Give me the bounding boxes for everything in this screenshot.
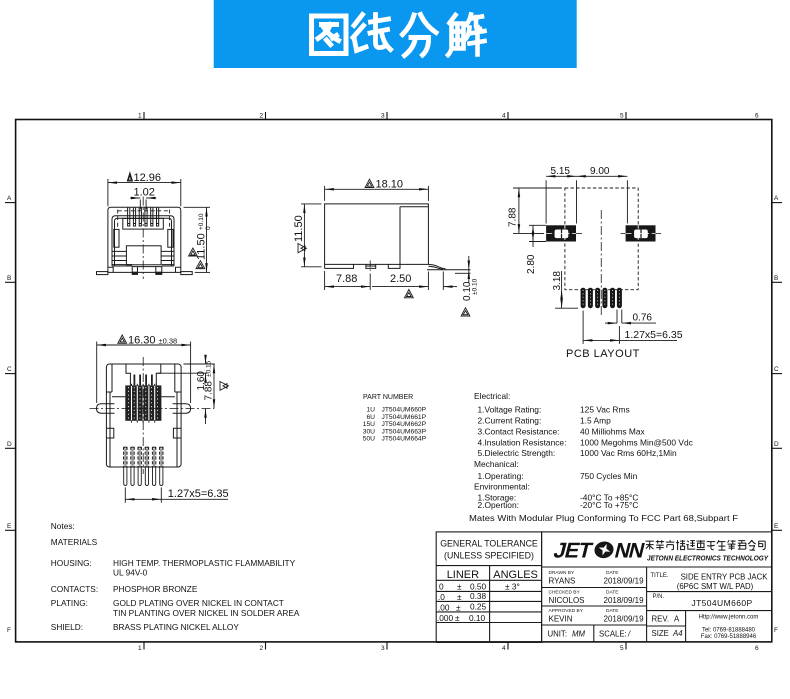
svg-text:Http://www.jetonn.com: Http://www.jetonn.com xyxy=(699,615,759,621)
svg-text:50U: 50U xyxy=(363,436,375,443)
svg-text:PHOSPHOR BRONZE: PHOSPHOR BRONZE xyxy=(113,584,198,594)
svg-text:A: A xyxy=(674,615,680,624)
svg-text:D: D xyxy=(7,441,12,448)
svg-text:.000: .000 xyxy=(437,613,454,623)
svg-text:5.Dielectric Strength:: 5.Dielectric Strength: xyxy=(478,448,556,458)
svg-text:JT504UM664P: JT504UM664P xyxy=(382,436,427,443)
svg-text:LINER: LINER xyxy=(447,569,479,581)
svg-text:CONTACTS:: CONTACTS: xyxy=(51,584,98,594)
svg-text:-20°C To +75°C: -20°C To +75°C xyxy=(580,500,638,510)
svg-text:1.27x5=6.35: 1.27x5=6.35 xyxy=(168,488,229,500)
svg-text:CHECKED BY: CHECKED BY xyxy=(549,590,581,596)
svg-text:NN: NN xyxy=(612,539,646,563)
svg-text:3: 3 xyxy=(381,645,385,652)
svg-text:F: F xyxy=(7,627,11,634)
svg-text:0: 0 xyxy=(439,582,444,592)
svg-text:16.30: 16.30 xyxy=(128,335,156,347)
svg-text:C: C xyxy=(774,366,779,373)
svg-text:±: ± xyxy=(456,602,461,612)
svg-text:6: 6 xyxy=(755,113,759,120)
svg-text:5: 5 xyxy=(620,645,624,652)
svg-text:1.Voltage Rating:: 1.Voltage Rating: xyxy=(478,404,542,414)
svg-text:GENERAL TOLERANCE: GENERAL TOLERANCE xyxy=(440,539,538,549)
svg-text:APPROVED BY: APPROVED BY xyxy=(549,608,584,614)
svg-text:30U: 30U xyxy=(363,428,375,435)
svg-text:0.25: 0.25 xyxy=(470,601,487,611)
svg-text:MM: MM xyxy=(572,630,585,639)
svg-text:JT504UM660P: JT504UM660P xyxy=(382,407,427,414)
svg-text:±0.38: ±0.38 xyxy=(159,337,178,346)
svg-text:TIN PLANTING OVER NICKEL IN SO: TIN PLANTING OVER NICKEL IN SOLDER AREA xyxy=(113,608,300,618)
svg-text:DRAWN BY: DRAWN BY xyxy=(549,570,575,576)
svg-text:18.10: 18.10 xyxy=(376,179,404,191)
svg-text:HIGH TEMP. THERMOPLASTIC FLAMM: HIGH TEMP. THERMOPLASTIC FLAMMABILITY xyxy=(113,558,296,568)
svg-text:.00: .00 xyxy=(438,602,450,612)
svg-text:7.88: 7.88 xyxy=(204,381,215,401)
svg-text:± 3°: ± 3° xyxy=(505,582,520,592)
svg-text:A4: A4 xyxy=(672,629,683,638)
svg-text:.0: .0 xyxy=(438,592,445,602)
svg-text:15U: 15U xyxy=(363,421,375,428)
svg-text:4: 4 xyxy=(502,645,506,652)
svg-text:GOLD PLATING OVER NICKEL IN CO: GOLD PLATING OVER NICKEL IN CONTACT xyxy=(113,598,284,608)
svg-text:3.Contact Resistance:: 3.Contact Resistance: xyxy=(478,426,560,436)
svg-text:0.76: 0.76 xyxy=(633,313,653,324)
svg-text:1.Operating:: 1.Operating: xyxy=(478,471,524,481)
svg-text:Fax: 0769-51888946: Fax: 0769-51888946 xyxy=(701,634,757,640)
svg-text:UL 94V-0: UL 94V-0 xyxy=(113,568,148,578)
svg-text:7.88: 7.88 xyxy=(336,273,357,285)
svg-text:1U: 1U xyxy=(366,407,375,414)
svg-text:SCALE:: SCALE: xyxy=(599,630,627,639)
svg-text:Mechanical:: Mechanical: xyxy=(474,459,519,469)
svg-text:ANGLES: ANGLES xyxy=(493,569,538,581)
svg-text:TITLE.: TITLE. xyxy=(651,573,669,579)
svg-text:A: A xyxy=(774,195,779,202)
svg-text:12.96: 12.96 xyxy=(134,172,162,184)
svg-text:40 Milliohms Max: 40 Milliohms Max xyxy=(580,426,646,436)
svg-text:5: 5 xyxy=(620,113,624,120)
svg-text:±0.10: ±0.10 xyxy=(472,278,479,295)
svg-text:1.5 Amp: 1.5 Amp xyxy=(580,416,611,426)
svg-text:2018/09/19: 2018/09/19 xyxy=(604,615,645,624)
svg-text:BRASS PLATING NICKEL ALLOY: BRASS PLATING NICKEL ALLOY xyxy=(113,622,239,632)
svg-text:2: 2 xyxy=(260,113,264,120)
svg-text:125 Vac Rms: 125 Vac Rms xyxy=(580,404,630,414)
svg-text:0.38: 0.38 xyxy=(470,591,487,601)
svg-text:JETONN ELECTRONICS TECHNOLOGY: JETONN ELECTRONICS TECHNOLOGY xyxy=(647,556,769,563)
svg-text:6: 6 xyxy=(755,645,759,652)
svg-text:4: 4 xyxy=(502,113,506,120)
svg-text:1: 1 xyxy=(138,113,142,120)
svg-text:1.27x5=6.35: 1.27x5=6.35 xyxy=(625,329,683,341)
svg-text:11.50: 11.50 xyxy=(293,215,305,242)
svg-text:4.Insulation Resistance:: 4.Insulation Resistance: xyxy=(478,437,567,447)
svg-text:Notes:: Notes: xyxy=(51,521,75,531)
svg-text:SIZE: SIZE xyxy=(652,629,669,638)
svg-text:2.Current Rating:: 2.Current Rating: xyxy=(478,416,542,426)
svg-text:DATE: DATE xyxy=(606,608,618,614)
svg-text:JT504UM660P: JT504UM660P xyxy=(691,598,752,608)
svg-text:±: ± xyxy=(455,613,460,623)
svg-text:(6P6C SMT W/L PAD): (6P6C SMT W/L PAD) xyxy=(677,582,754,591)
svg-text:REV.: REV. xyxy=(652,615,669,624)
svg-text:1000 Vac Rms 60Hz,1Min: 1000 Vac Rms 60Hz,1Min xyxy=(580,448,677,458)
svg-text:2: 2 xyxy=(260,645,264,652)
svg-text:7.88: 7.88 xyxy=(508,207,519,227)
svg-text:±: ± xyxy=(457,592,462,602)
svg-text:3: 3 xyxy=(381,113,385,120)
svg-text:F: F xyxy=(774,627,778,634)
svg-text:KEVIN: KEVIN xyxy=(549,615,573,624)
svg-text:1000 Megohms Min@500 Vdc: 1000 Megohms Min@500 Vdc xyxy=(580,437,693,447)
svg-text:JT504UM662P: JT504UM662P xyxy=(382,421,427,428)
svg-text:NICOLOS: NICOLOS xyxy=(549,596,585,605)
svg-text:MATERIALS: MATERIALS xyxy=(51,537,98,547)
svg-text:A: A xyxy=(7,195,12,202)
svg-text:E: E xyxy=(774,523,779,530)
svg-text:2.50: 2.50 xyxy=(390,273,411,285)
svg-text:1: 1 xyxy=(138,645,142,652)
svg-text:5.15: 5.15 xyxy=(551,166,571,177)
svg-text:Mates With Modular Plug Confor: Mates With Modular Plug Conforming To FC… xyxy=(469,513,738,523)
svg-text:C: C xyxy=(7,366,12,373)
svg-text:2.Opertion:: 2.Opertion: xyxy=(478,500,519,510)
svg-text:HOUSING:: HOUSING: xyxy=(51,558,92,568)
svg-text:3.18: 3.18 xyxy=(552,271,563,291)
svg-text:B: B xyxy=(774,275,778,282)
svg-text:0: 0 xyxy=(205,226,212,230)
svg-text:PCB LAYOUT: PCB LAYOUT xyxy=(566,348,640,360)
svg-text:1.02: 1.02 xyxy=(134,187,155,199)
svg-text:Tel: 0769-81888480: Tel: 0769-81888480 xyxy=(702,628,756,634)
svg-text:P/N.: P/N. xyxy=(653,594,665,600)
svg-text:RYANS: RYANS xyxy=(549,577,576,586)
svg-text:B: B xyxy=(7,275,11,282)
svg-text:9.00: 9.00 xyxy=(590,166,610,177)
svg-text:JT504UM663P: JT504UM663P xyxy=(382,428,427,435)
svg-text:Electrical:: Electrical: xyxy=(474,391,510,401)
svg-text:±: ± xyxy=(457,582,462,592)
svg-text:+0.10: +0.10 xyxy=(198,213,205,230)
svg-text:(UNLESS SPECIFIED): (UNLESS SPECIFIED) xyxy=(444,551,534,561)
svg-text:6U: 6U xyxy=(366,414,375,421)
svg-text:2018/09/19: 2018/09/19 xyxy=(604,596,645,605)
svg-text:SIDE ENTRY PCB JACK: SIDE ENTRY PCB JACK xyxy=(681,573,769,582)
svg-text:PLATING:: PLATING: xyxy=(51,598,88,608)
svg-text:E: E xyxy=(7,523,12,530)
svg-text:D: D xyxy=(774,441,779,448)
svg-text:JT504UM661P: JT504UM661P xyxy=(382,414,427,421)
svg-text:Environmental:: Environmental: xyxy=(474,482,530,492)
svg-text:SHIELD:: SHIELD: xyxy=(51,622,83,632)
svg-text:UNIT:: UNIT: xyxy=(548,630,568,639)
svg-text:±0.15: ±0.15 xyxy=(206,360,213,377)
svg-text:2.80: 2.80 xyxy=(526,254,537,274)
svg-text:DATE: DATE xyxy=(606,570,618,576)
svg-text:PART NUMBER: PART NUMBER xyxy=(363,394,413,401)
svg-text:0.10: 0.10 xyxy=(469,613,486,623)
svg-text:2018/09/19: 2018/09/19 xyxy=(604,577,645,586)
svg-text:750 Cycles Min: 750 Cycles Min xyxy=(580,471,638,481)
svg-text:DATE: DATE xyxy=(606,590,618,596)
